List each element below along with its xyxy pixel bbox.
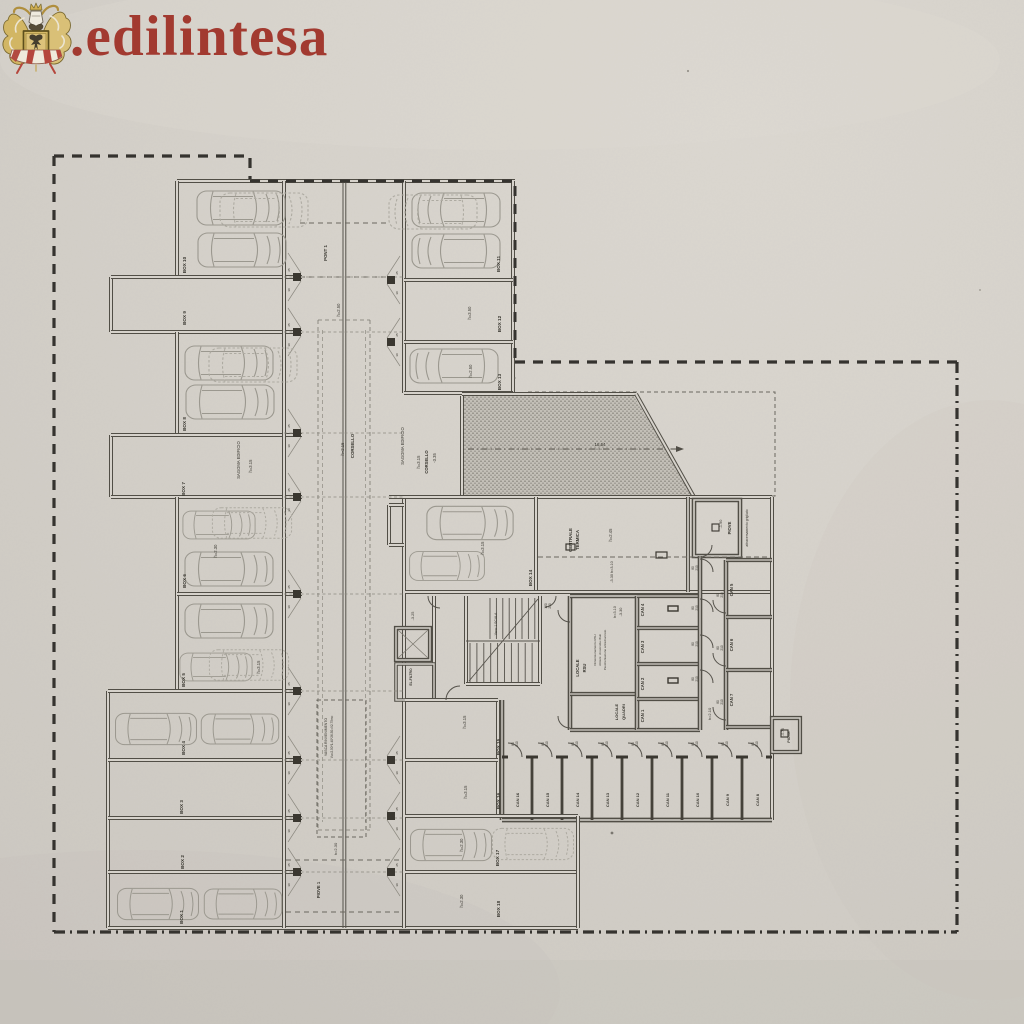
svg-text:25: 25	[287, 585, 291, 589]
svg-text:BOX 5: BOX 5	[181, 673, 186, 687]
svg-text:30: 30	[287, 288, 291, 292]
svg-text:CAN 6: CAN 6	[729, 638, 734, 651]
svg-text:h=2.30: h=2.30	[213, 544, 218, 558]
svg-text:-3.25: -3.25	[411, 612, 415, 621]
svg-text:BOX 10: BOX 10	[182, 256, 187, 273]
svg-text:210: 210	[695, 641, 699, 647]
svg-text:CAN 16: CAN 16	[515, 792, 520, 807]
svg-text:Attrezz. di raccolta rifiuti: Attrezz. di raccolta rifiuti	[598, 634, 602, 666]
svg-text:210: 210	[635, 741, 639, 747]
svg-text:210: 210	[720, 699, 724, 705]
svg-text:LOCALE: LOCALE	[575, 659, 580, 676]
svg-text:h=3.15: h=3.15	[248, 459, 253, 473]
svg-text:25: 25	[287, 809, 291, 813]
svg-text:BOX 15: BOX 15	[496, 738, 501, 755]
svg-text:-3.30: -3.30	[619, 608, 623, 617]
svg-text:25: 25	[395, 807, 399, 811]
svg-text:210: 210	[720, 592, 724, 598]
svg-text:CORSELLO: CORSELLO	[350, 433, 355, 458]
svg-text:BOX 2: BOX 2	[180, 855, 185, 869]
svg-text:CAN 2: CAN 2	[640, 677, 645, 690]
svg-text:210: 210	[695, 676, 699, 682]
svg-text:LOCALE: LOCALE	[614, 703, 619, 720]
svg-text:25: 25	[395, 271, 399, 275]
svg-text:BOX 18: BOX 18	[496, 900, 501, 917]
svg-text:CAN 4: CAN 4	[640, 603, 645, 616]
svg-text:30: 30	[395, 827, 399, 831]
svg-text:BOX 9: BOX 9	[182, 311, 187, 325]
svg-text:210: 210	[545, 741, 549, 747]
svg-text:30: 30	[287, 605, 291, 609]
svg-text:h=3.15: h=3.15	[256, 660, 261, 674]
svg-text:16,54: 16,54	[595, 442, 607, 447]
svg-text:210: 210	[695, 605, 699, 611]
svg-text:BOX 11: BOX 11	[496, 256, 501, 273]
svg-text:25: 25	[287, 863, 291, 867]
svg-text:210: 210	[755, 741, 759, 747]
svg-text:PIOVE 1: PIOVE 1	[316, 881, 321, 898]
svg-text:30: 30	[287, 883, 291, 887]
svg-text:CAN 7: CAN 7	[729, 693, 734, 706]
svg-text:CAN 5: CAN 5	[729, 583, 734, 596]
svg-text:25: 25	[287, 751, 291, 755]
svg-text:CAN 12: CAN 12	[635, 792, 640, 807]
svg-text:h=3.15: h=3.15	[480, 541, 485, 555]
svg-text:PONT 1: PONT 1	[323, 245, 328, 261]
svg-text:h=2.10: h=2.10	[707, 707, 712, 720]
svg-text:210: 210	[725, 741, 729, 747]
svg-text:30: 30	[287, 444, 291, 448]
svg-text:CAN 9: CAN 9	[725, 793, 730, 806]
svg-text:30: 30	[287, 702, 291, 706]
svg-text:Dimensionamento RSU: Dimensionamento RSU	[593, 634, 597, 665]
svg-text:h=3.10: h=3.10	[613, 606, 617, 618]
svg-text:210: 210	[605, 741, 609, 747]
svg-text:BOX 13: BOX 13	[497, 373, 502, 390]
svg-text:BOX 6: BOX 6	[182, 574, 187, 588]
svg-text:BOX 14: BOX 14	[528, 569, 533, 586]
svg-text:250: 250	[548, 603, 552, 609]
svg-text:h=2.45: h=2.45	[608, 528, 613, 542]
svg-text:210: 210	[575, 741, 579, 747]
svg-text:VASCA RINVENIMENTO: VASCA RINVENIMENTO	[324, 718, 328, 756]
svg-text:h=3.15: h=3.15	[416, 455, 421, 469]
svg-text:BOX 7: BOX 7	[181, 482, 186, 496]
svg-text:.edilintesa: .edilintesa	[70, 5, 329, 68]
svg-text:25: 25	[395, 863, 399, 867]
svg-text:h=2.50: h=2.50	[336, 303, 341, 317]
svg-text:BOX 4: BOX 4	[181, 741, 186, 755]
svg-text:210: 210	[695, 741, 699, 747]
svg-text:h=2.50: h=2.50	[468, 364, 473, 378]
svg-text:attraversamento grigliato: attraversamento grigliato	[745, 509, 749, 546]
svg-text:CAN 8: CAN 8	[755, 793, 760, 806]
svg-text:-3.30 h=3.10: -3.30 h=3.10	[610, 561, 614, 582]
svg-text:25: 25	[287, 488, 291, 492]
svg-text:210: 210	[665, 741, 669, 747]
svg-text:SAGOMA EDIFICIO: SAGOMA EDIFICIO	[236, 441, 241, 479]
svg-text:BOX 8: BOX 8	[182, 417, 187, 431]
svg-text:TERMICA: TERMICA	[575, 529, 580, 550]
svg-text:CORSELLO: CORSELLO	[424, 450, 429, 474]
svg-text:CAN 14: CAN 14	[575, 792, 580, 807]
svg-text:30: 30	[287, 343, 291, 347]
svg-text:25: 25	[287, 268, 291, 272]
svg-text:EL.FILTRO: EL.FILTRO	[409, 668, 413, 686]
svg-text:30: 30	[287, 508, 291, 512]
svg-text:CAN 10: CAN 10	[695, 792, 700, 807]
svg-text:-0.75: -0.75	[781, 728, 785, 736]
svg-text:30: 30	[395, 353, 399, 357]
svg-text:CAN 3: CAN 3	[640, 640, 645, 653]
svg-text:25: 25	[287, 323, 291, 327]
svg-text:h=2.30: h=2.30	[459, 838, 464, 852]
svg-text:h=2.30: h=2.30	[333, 842, 338, 855]
svg-text:210: 210	[720, 645, 724, 651]
svg-text:25: 25	[287, 682, 291, 686]
svg-text:30: 30	[287, 771, 291, 775]
svg-text:25: 25	[395, 333, 399, 337]
svg-text:QUADRI: QUADRI	[621, 704, 626, 720]
svg-text:h=3.15: h=3.15	[462, 715, 467, 729]
svg-text:Vano 1 SCALA: Vano 1 SCALA	[494, 612, 498, 635]
svg-text:-3.35: -3.35	[432, 453, 437, 463]
svg-text:25: 25	[395, 751, 399, 755]
svg-text:210: 210	[515, 741, 519, 747]
svg-text:CAN 13: CAN 13	[605, 792, 610, 807]
svg-text:30: 30	[395, 883, 399, 887]
svg-text:Pavimentazione antisdrucciolo: Pavimentazione antisdrucciolo	[603, 629, 607, 670]
svg-text:BOX 3: BOX 3	[179, 800, 184, 814]
svg-text:h=2.15: h=2.15	[340, 442, 345, 456]
svg-text:RSU: RSU	[582, 664, 587, 673]
svg-text:30: 30	[287, 829, 291, 833]
svg-text:CAN 1: CAN 1	[640, 709, 645, 722]
svg-text:BOX 16: BOX 16	[496, 792, 501, 809]
svg-text:30: 30	[395, 291, 399, 295]
svg-text:CAN 11: CAN 11	[665, 792, 670, 807]
svg-text:BOX 12: BOX 12	[497, 315, 502, 332]
svg-text:CAN 15: CAN 15	[545, 792, 550, 807]
svg-text:BOX 17: BOX 17	[495, 849, 500, 866]
svg-text:h=3.50: h=3.50	[467, 306, 472, 320]
svg-text:h=2.30: h=2.30	[459, 894, 464, 908]
svg-text:PIOVE: PIOVE	[727, 521, 732, 534]
svg-text:PIOVE: PIOVE	[787, 731, 791, 743]
svg-text:30: 30	[395, 771, 399, 775]
svg-text:-1.90: -1.90	[719, 520, 723, 529]
svg-text:CENTRALE: CENTRALE	[568, 528, 573, 552]
svg-text:h=3.15: h=3.15	[463, 785, 468, 799]
svg-text:25: 25	[287, 424, 291, 428]
svg-text:Vu=2.50*1.40*26.50=92.75mc: Vu=2.50*1.40*26.50=92.75mc	[330, 715, 334, 758]
svg-text:210: 210	[695, 565, 699, 571]
svg-text:SAGOMA EDIFICIO: SAGOMA EDIFICIO	[400, 427, 405, 465]
svg-text:BOX 1: BOX 1	[179, 910, 184, 924]
